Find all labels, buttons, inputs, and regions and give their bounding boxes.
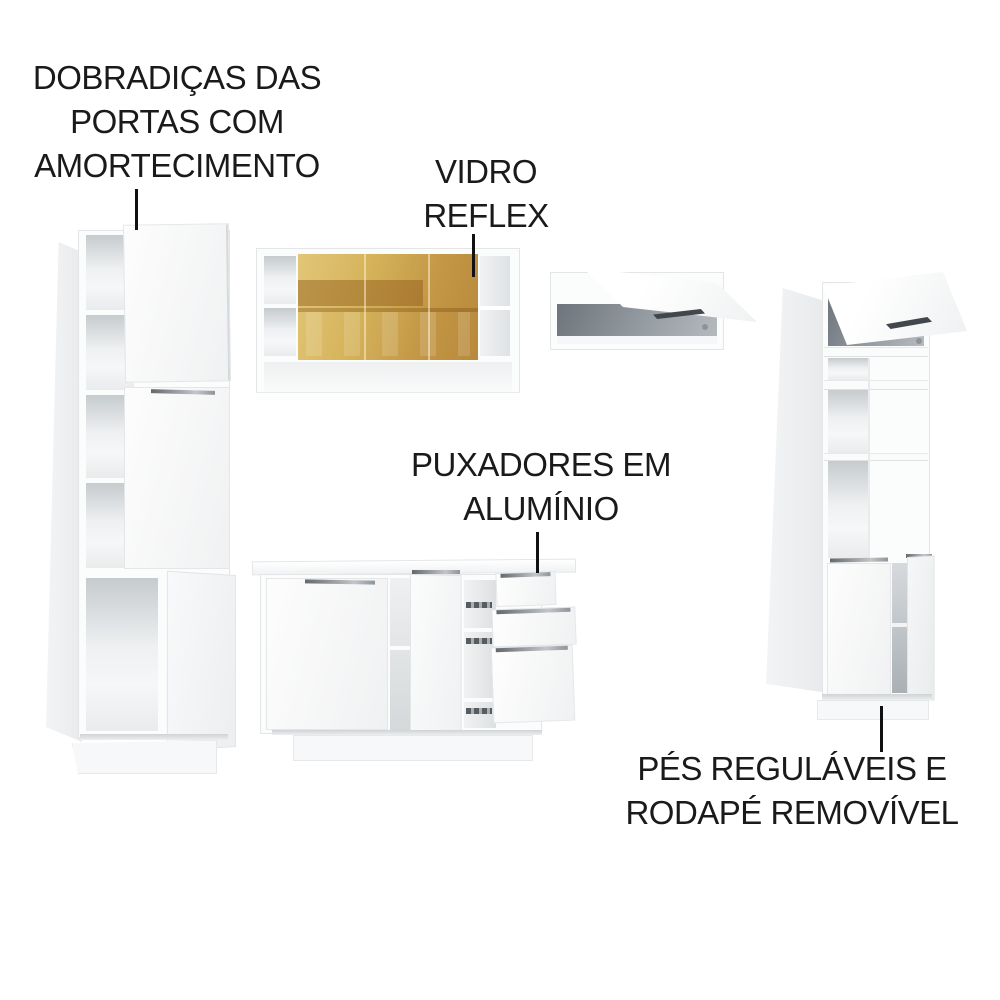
tower-plinth [817, 700, 929, 720]
handles-pointer-line [536, 532, 539, 573]
tower-side-panel [766, 288, 822, 692]
tall-cabinet-left [44, 226, 230, 778]
tower-lower-door-ajar [907, 555, 935, 700]
glass-cabinet-right-shelf [480, 306, 510, 310]
hinge-icon [916, 338, 922, 344]
wall-cabinet-glass [256, 244, 522, 404]
tower-open-slot [828, 358, 868, 380]
glass-pointer-line [472, 234, 475, 277]
aluminum-handle-icon [500, 572, 550, 578]
wall-cabinet-liftup [550, 260, 768, 356]
callout-adjustable-feet: PÉS REGULÁVEIS E RODAPÉ REMOVÍVEL [622, 747, 962, 835]
tower-shelf-1 [824, 347, 928, 357]
liftup-cabinet-bottom-shelf [557, 336, 717, 344]
aluminum-handle-icon [305, 579, 375, 584]
left-cabinet-bottom-door-ajar [167, 571, 236, 752]
counter-left-door [266, 578, 388, 730]
drawer-front-bottom [491, 645, 576, 724]
drawer-front-middle [491, 607, 576, 648]
callout-aluminum-handles: PUXADORES EM ALUMÍNIO [401, 443, 681, 531]
tower-shelf-3 [824, 453, 928, 461]
tall-cabinet-oven-tower [764, 262, 968, 722]
drawer-slide-icon [466, 602, 492, 608]
hinge-icon [702, 324, 708, 330]
tower-inner-edge [868, 358, 870, 558]
drawer-slide-icon [466, 638, 492, 644]
counter-plinth [293, 735, 533, 761]
counter-middle-door-ajar [410, 574, 462, 732]
glass-cabinet-left-shelf-2 [264, 308, 296, 356]
counter-door-gap-interior [390, 578, 410, 730]
tower-open-compartment [828, 461, 868, 558]
tower-shelf-2 [824, 380, 928, 390]
left-cabinet-side-panel [46, 242, 82, 742]
callout-reflex-glass: VIDRO REFLEX [406, 150, 566, 238]
glass-cabinet-bottom-panel [256, 392, 520, 400]
base-cabinet-counter [252, 558, 582, 764]
glass-reflection-stripes [306, 312, 470, 356]
callout-soft-close-hinges: DOBRADIÇAS DAS PORTAS COM AMORTECIMENTO [17, 56, 337, 188]
glass-cabinet-left-shelf-1 [264, 256, 296, 304]
glass-reflection-band [298, 280, 423, 306]
left-cabinet-top-door [123, 223, 231, 382]
glass-cabinet-right-interior [480, 256, 510, 356]
counter-gap-shelf [390, 646, 410, 650]
aluminum-handle-icon [496, 646, 568, 653]
aluminum-handle-icon [151, 389, 215, 395]
aluminum-handle-icon [412, 570, 460, 574]
tower-lower-door [827, 563, 891, 697]
reflex-glass-door [298, 254, 478, 360]
left-cabinet-open-compartment-bottom [86, 578, 158, 731]
left-cabinet-plinth [72, 740, 217, 774]
left-cabinet-middle-door [124, 387, 230, 569]
hinges-pointer-line [135, 189, 138, 230]
kitchen-cabinet-product-image: DOBRADIÇAS DAS PORTAS COM AMORTECIMENTO … [0, 0, 1000, 1000]
drawer-box-divider [464, 698, 496, 702]
drawer-front-top [495, 571, 556, 607]
left-cabinet-base-shadow [80, 734, 228, 740]
drawer-slide-icon [466, 708, 492, 714]
aluminum-handle-icon [496, 608, 570, 615]
tower-gap-shelf [892, 623, 907, 627]
feet-pointer-line [880, 706, 883, 752]
tower-oven-niche [828, 390, 868, 453]
glass-cabinet-open-bottom-shelf [264, 362, 512, 392]
tower-door-gap-interior [892, 563, 907, 693]
